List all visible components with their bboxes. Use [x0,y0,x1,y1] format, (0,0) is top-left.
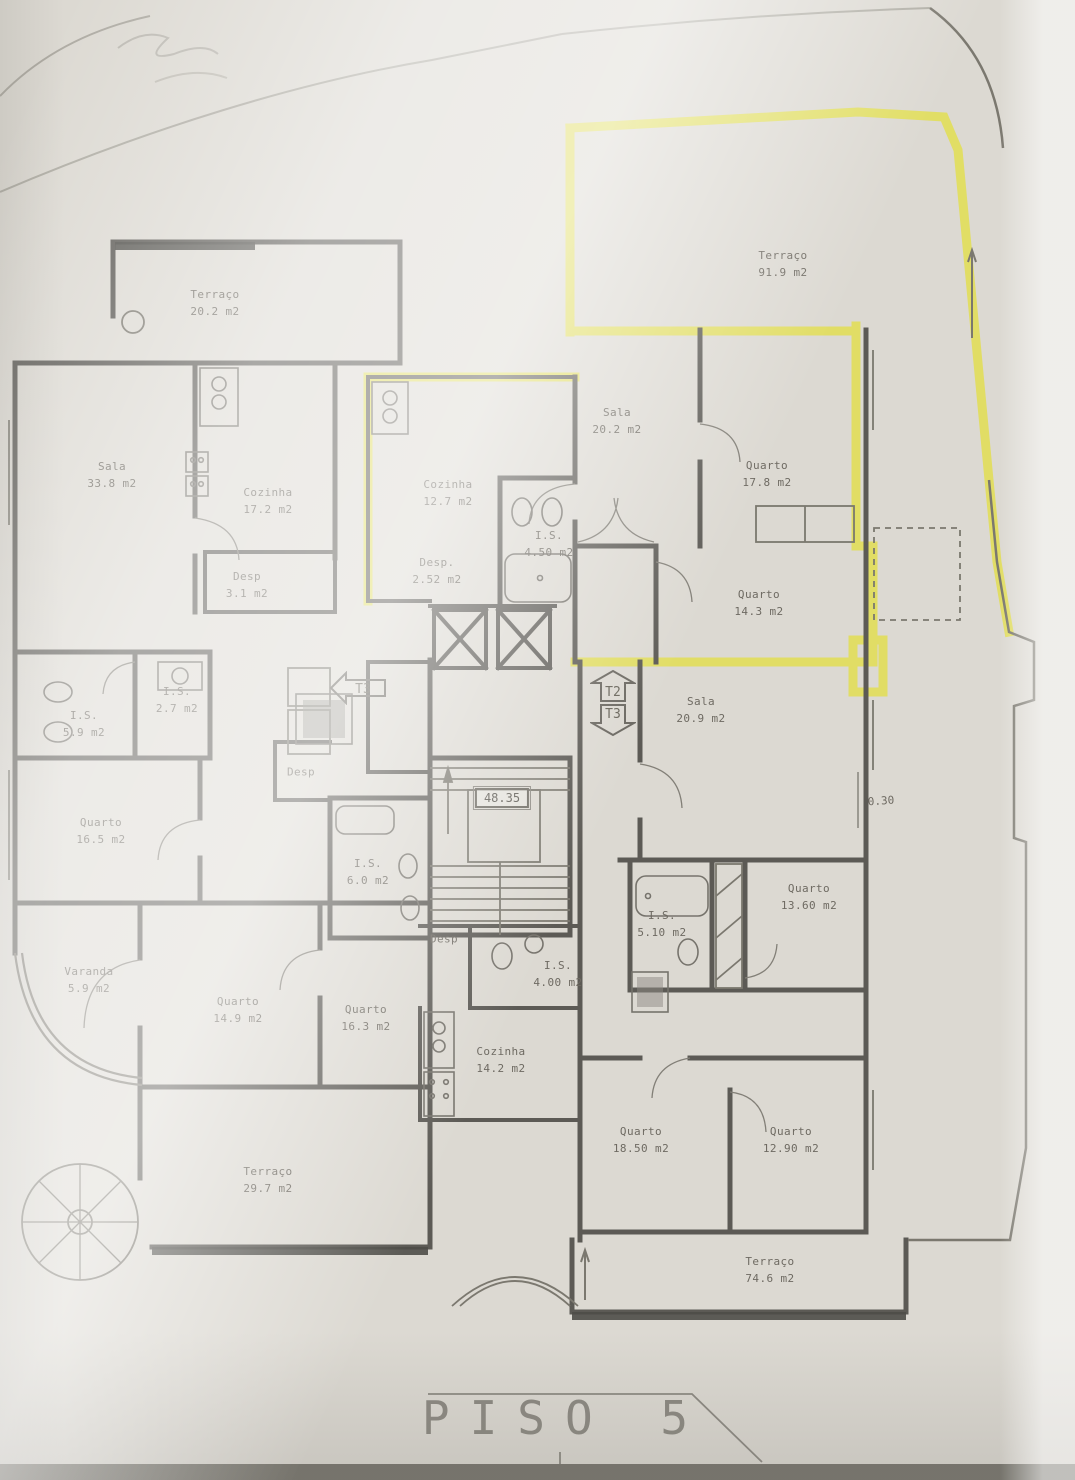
room-area: 14.9 m2 [213,1010,262,1027]
room-label: Desp.2.52 m2 [412,554,461,588]
room-label: Sala33.8 m2 [87,458,136,492]
room-area: 6.0 m2 [347,872,389,889]
stair-elevation-label: 48.35 [475,788,529,808]
room-area: 13.60 m2 [781,897,837,914]
page-title: PISO 5 [422,1391,708,1445]
photo-bottom-edge [0,1464,1075,1480]
room-label: I.S.4.00 m2 [533,957,582,991]
room-area: 4.00 m2 [533,974,582,991]
room-name: Terraço [745,1253,794,1270]
room-label: Terraço74.6 m2 [745,1253,794,1287]
room-area: 5.9 m2 [63,724,105,741]
room-label: Quarto13.60 m2 [781,880,837,914]
room-area: 91.9 m2 [758,264,807,281]
room-name: Varanda [64,963,113,980]
room-area: 14.2 m2 [476,1060,525,1077]
room-name: I.S. [163,683,191,700]
room-label: Cozinha14.2 m2 [476,1043,525,1077]
room-area: 74.6 m2 [745,1270,794,1287]
room-name: Sala [98,458,126,475]
room-name: Terraço [243,1163,292,1180]
unit-marker-t3-left: T3 [329,671,387,709]
room-name: I.S. [354,855,382,872]
room-label: Desp [430,930,458,947]
room-area: 2.52 m2 [412,571,461,588]
room-area: 17.8 m2 [742,474,791,491]
sketch-lines [0,8,930,192]
room-name: I.S. [648,907,676,924]
room-name: Desp [233,568,261,585]
room-name: Terraço [190,286,239,303]
walls-thin [9,8,1034,1480]
unit-marker-label: T3 [605,707,621,722]
room-name: Sala [687,693,715,710]
unit-marker-label: T2 [605,685,621,700]
room-name: Cozinha [476,1043,525,1060]
room-name: Cozinha [243,484,292,501]
room-name: Quarto [620,1123,662,1140]
room-name: Quarto [746,457,788,474]
dimension-label: 0.30 [867,794,894,809]
room-label: Quarto12.90 m2 [763,1123,819,1157]
unit-marker-t2-up: T2 [590,669,636,707]
room-area: 14.3 m2 [734,603,783,620]
room-label: Terraço91.9 m2 [758,247,807,281]
room-area: 20.2 m2 [190,303,239,320]
room-label: I.S.2.7 m2 [156,683,198,717]
room-label: I.S.4.50 m2 [524,527,573,561]
room-label: Quarto14.9 m2 [213,993,262,1027]
room-name: Quarto [738,586,780,603]
floor-plan-drawing [0,0,1075,1480]
room-area: 4.50 m2 [524,544,573,561]
room-area: 12.90 m2 [763,1140,819,1157]
room-area: 2.7 m2 [156,700,198,717]
room-name: Quarto [345,1001,387,1018]
room-name: I.S. [544,957,572,974]
room-label: Quarto17.8 m2 [742,457,791,491]
room-label: Sala20.2 m2 [592,404,641,438]
room-name: Quarto [80,814,122,831]
room-area: 20.9 m2 [676,710,725,727]
room-name: Desp [430,930,458,947]
room-name: Quarto [770,1123,812,1140]
room-label: Quarto18.50 m2 [613,1123,669,1157]
room-name: Desp [287,763,315,780]
room-label: Quarto14.3 m2 [734,586,783,620]
room-label: Terraço29.7 m2 [243,1163,292,1197]
room-name: Quarto [788,880,830,897]
room-area: 16.5 m2 [76,831,125,848]
room-name: Terraço [758,247,807,264]
room-area: 18.50 m2 [613,1140,669,1157]
room-name: I.S. [535,527,563,544]
room-label: Desp3.1 m2 [226,568,268,602]
room-area: 5.9 m2 [68,980,110,997]
room-area: 12.7 m2 [423,493,472,510]
room-name: Sala [603,404,631,421]
room-name: Quarto [217,993,259,1010]
room-label: Cozinha12.7 m2 [423,476,472,510]
room-name: Cozinha [423,476,472,493]
room-label: Varanda5.9 m2 [64,963,113,997]
room-label: I.S.5.10 m2 [637,907,686,941]
room-label: Sala20.9 m2 [676,693,725,727]
room-area: 29.7 m2 [243,1180,292,1197]
scanned-floor-plan-sheet: Terraço20.2 m2 Terraço91.9 m2 Sala33.8 m… [0,0,1075,1480]
room-area: 16.3 m2 [341,1018,390,1035]
room-label: Quarto16.3 m2 [341,1001,390,1035]
room-area: 17.2 m2 [243,501,292,518]
room-label: Quarto16.5 m2 [76,814,125,848]
room-area: 3.1 m2 [226,585,268,602]
unit-marker-label: T3 [355,682,371,697]
room-label: I.S.6.0 m2 [347,855,389,889]
unit-marker-t3-down: T3 [590,703,636,741]
room-name: Desp. [419,554,454,571]
room-name: I.S. [70,707,98,724]
room-label: Cozinha17.2 m2 [243,484,292,518]
room-area: 33.8 m2 [87,475,136,492]
room-label: Terraço20.2 m2 [190,286,239,320]
room-area: 5.10 m2 [637,924,686,941]
room-label: Desp [287,763,315,780]
room-label: I.S.5.9 m2 [63,707,105,741]
room-area: 20.2 m2 [592,421,641,438]
